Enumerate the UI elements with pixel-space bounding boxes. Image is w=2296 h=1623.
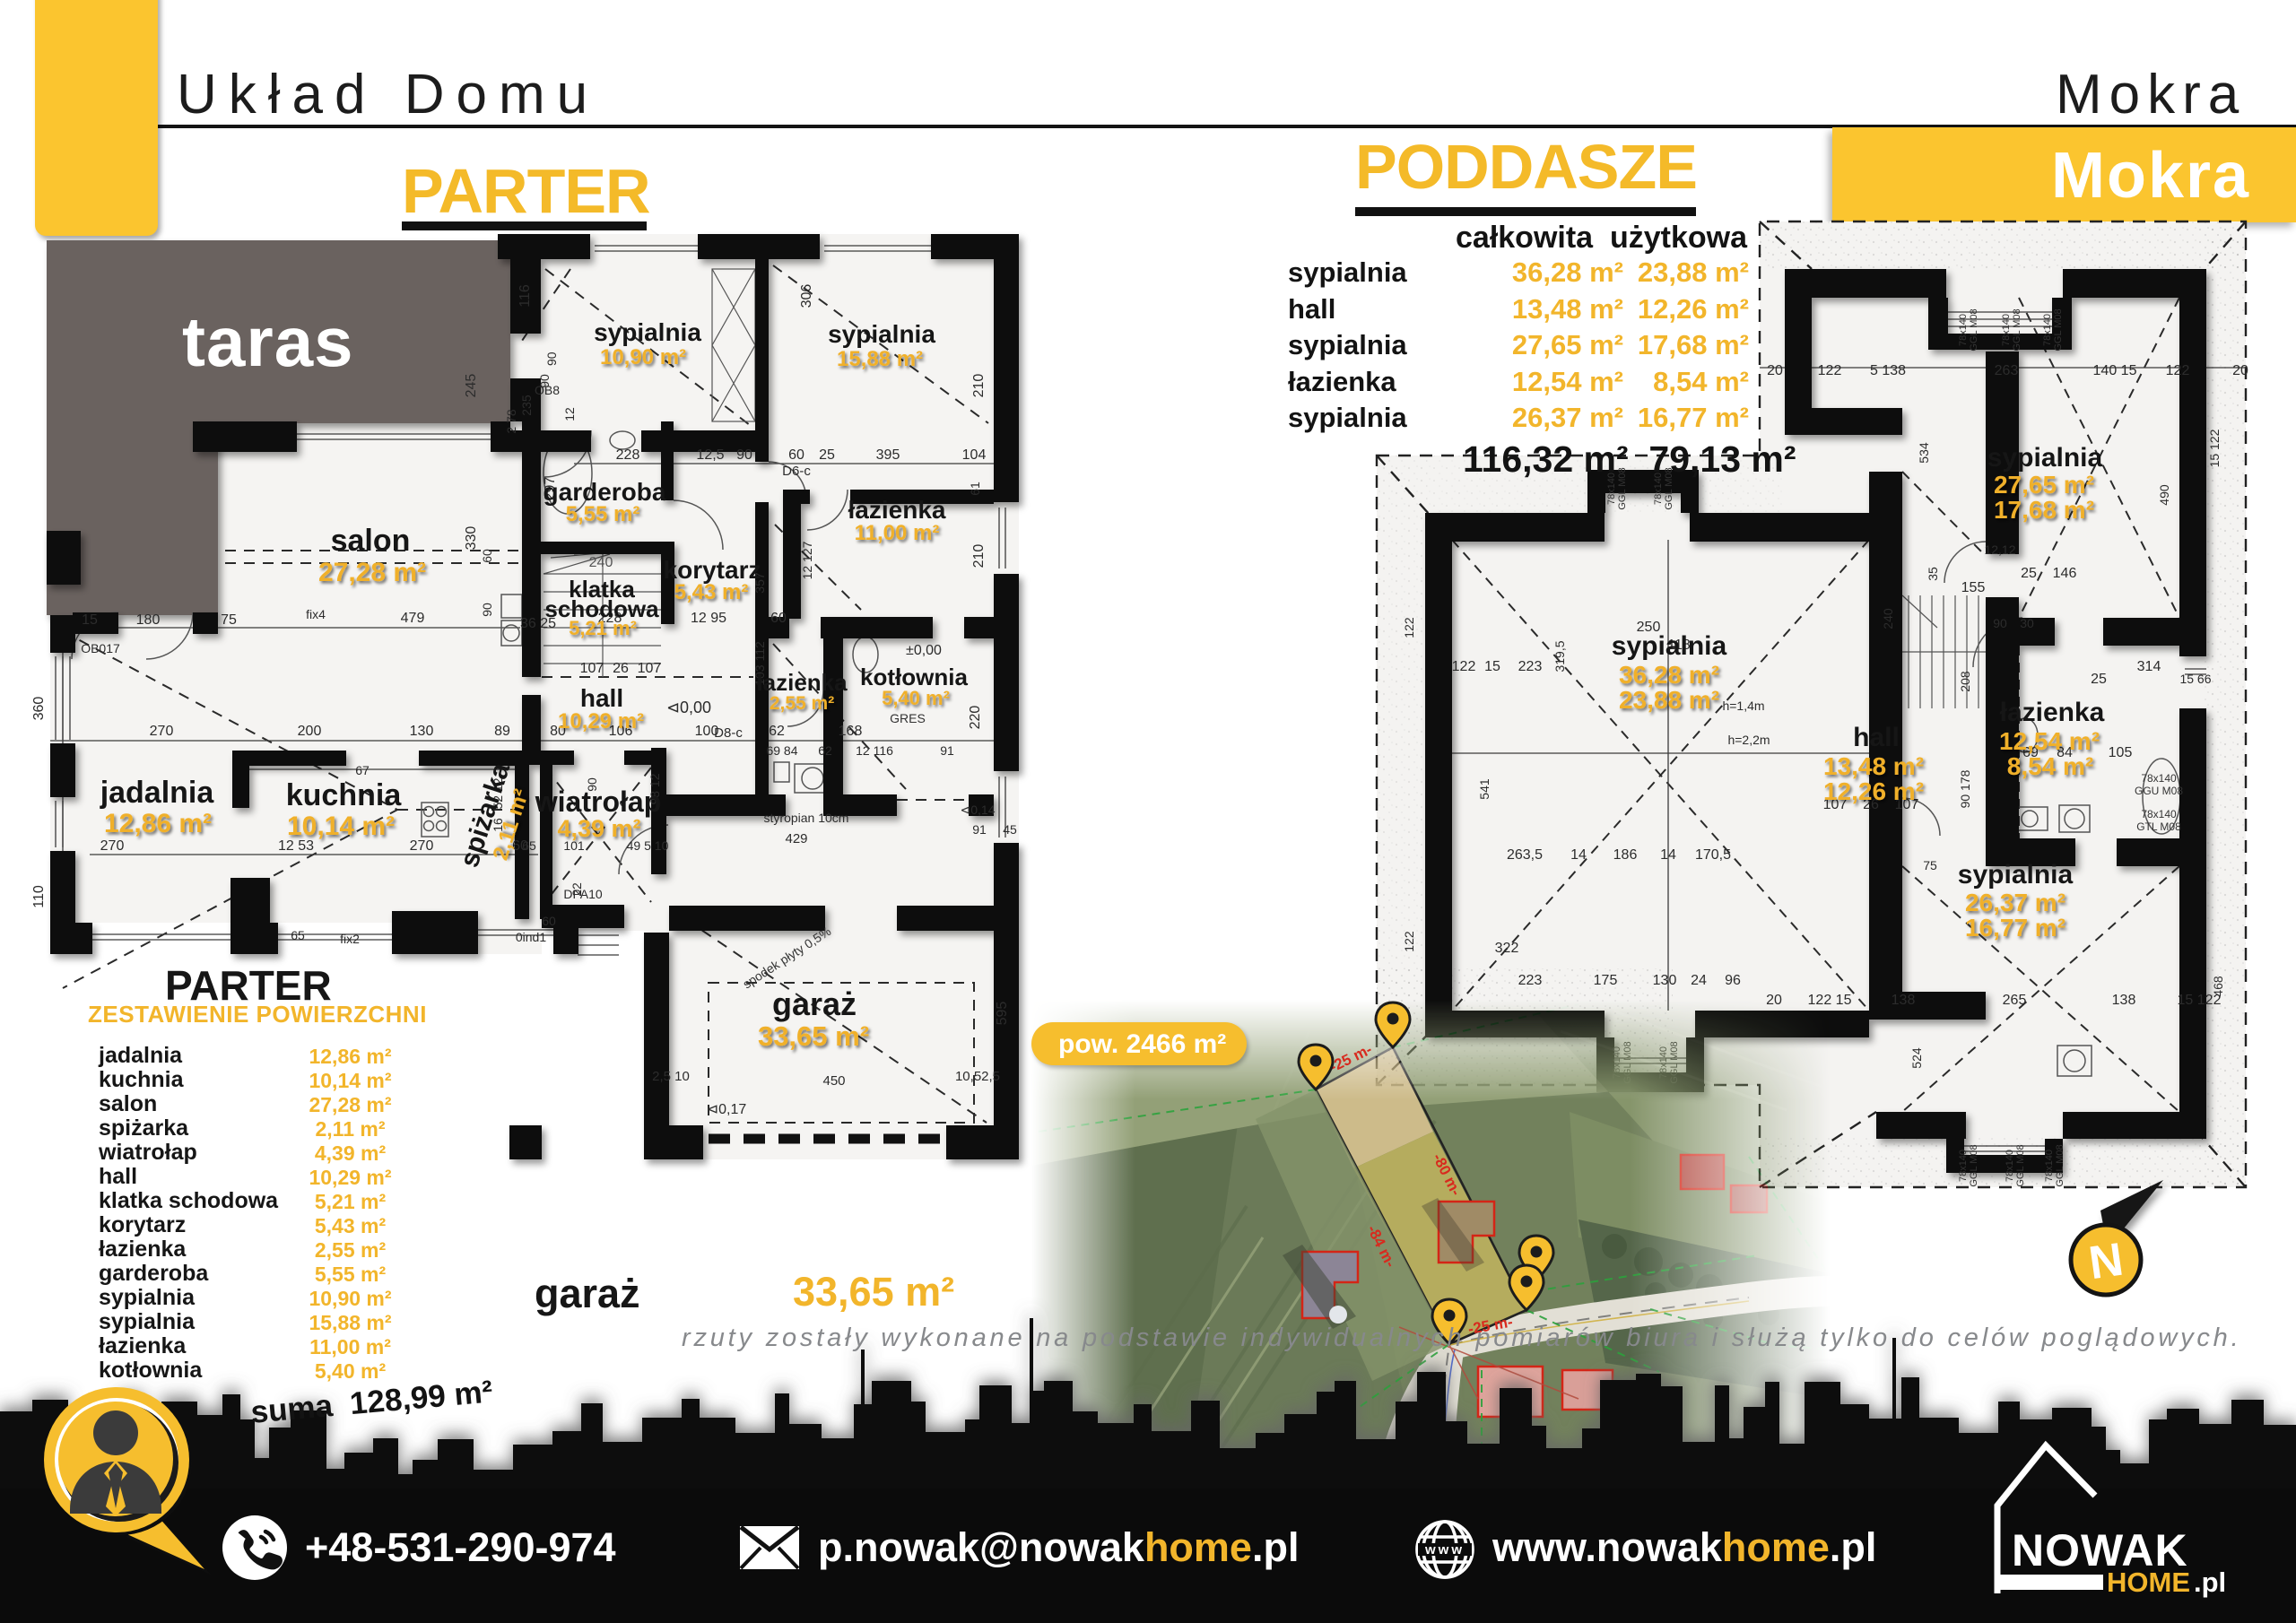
svg-text:5,43 m²: 5,43 m² xyxy=(674,580,749,604)
svg-text:25: 25 xyxy=(2091,672,2107,687)
svg-text:hall: hall xyxy=(580,684,623,712)
svg-text:155: 155 xyxy=(1961,580,1986,595)
svg-text:91: 91 xyxy=(972,822,987,837)
svg-text:GTL M08: GTL M08 xyxy=(2136,820,2181,833)
svg-text:330: 330 xyxy=(464,526,479,551)
svg-text:12,12: 12,12 xyxy=(1984,542,2015,557)
svg-text:10,90 m²: 10,90 m² xyxy=(600,345,686,369)
svg-text:kuchnia: kuchnia xyxy=(286,778,403,812)
svg-text:62: 62 xyxy=(818,743,832,758)
svg-text:265: 265 xyxy=(2003,993,2027,1008)
svg-text:10,52,5: 10,52,5 xyxy=(955,1069,1000,1084)
svg-text:27,65 m²: 27,65 m² xyxy=(1994,471,2094,499)
svg-text:240: 240 xyxy=(589,555,613,570)
svg-text:270: 270 xyxy=(100,838,125,854)
svg-text:140 15: 140 15 xyxy=(2093,363,2137,378)
svg-text:±0,00: ±0,00 xyxy=(906,643,942,658)
svg-text:122: 122 xyxy=(1402,617,1416,638)
svg-text:263,5: 263,5 xyxy=(1507,847,1543,863)
svg-text:110: 110 xyxy=(31,885,47,908)
svg-text:0ind1: 0ind1 xyxy=(516,930,546,944)
svg-text:45: 45 xyxy=(1003,822,1017,837)
svg-text:12,54 m²: 12,54 m² xyxy=(1999,727,2100,755)
svg-text:107: 107 xyxy=(638,661,662,676)
svg-text:16,77 m²: 16,77 m² xyxy=(1965,914,2066,942)
svg-text:89: 89 xyxy=(494,724,510,739)
svg-text:sypialnia: sypialnia xyxy=(1987,443,2103,473)
svg-text:15 66: 15 66 xyxy=(2179,672,2211,686)
svg-text:jadalnia: jadalnia xyxy=(100,776,215,810)
svg-text:15 122: 15 122 xyxy=(2207,429,2222,467)
svg-text:210: 210 xyxy=(971,544,987,568)
svg-text:60: 60 xyxy=(788,447,804,463)
svg-text:sypialnia: sypialnia xyxy=(1958,860,2074,890)
svg-text:fix2: fix2 xyxy=(340,932,360,946)
svg-text:łazienka: łazienka xyxy=(2000,698,2105,727)
svg-text:490: 490 xyxy=(2157,484,2171,506)
svg-text:69 84: 69 84 xyxy=(766,743,797,758)
svg-text:GRES: GRES xyxy=(890,711,926,725)
svg-text:170,5: 170,5 xyxy=(1695,847,1731,863)
svg-text:322: 322 xyxy=(1495,941,1519,956)
svg-text:26: 26 xyxy=(613,661,629,676)
svg-text:595: 595 xyxy=(995,1002,1010,1026)
svg-text:25: 25 xyxy=(2021,566,2037,581)
svg-text:78x140: 78x140 xyxy=(2141,808,2177,820)
svg-text:łazienka: łazienka xyxy=(848,496,946,524)
svg-text:20: 20 xyxy=(1767,363,1783,378)
svg-text:220: 220 xyxy=(968,706,983,730)
svg-text:⊲0,14: ⊲0,14 xyxy=(961,803,996,817)
svg-text:168: 168 xyxy=(839,724,863,739)
svg-text:12: 12 xyxy=(562,407,577,421)
svg-text:223: 223 xyxy=(1518,973,1543,988)
svg-text:245: 245 xyxy=(464,374,479,398)
svg-text:GGL M08: GGL M08 xyxy=(2015,1144,2026,1186)
svg-text:.pl: .pl xyxy=(2194,1567,2226,1598)
svg-text:104: 104 xyxy=(962,447,987,463)
svg-text:90: 90 xyxy=(1993,616,2007,630)
svg-text:12,86 m²: 12,86 m² xyxy=(104,809,212,838)
svg-text:138: 138 xyxy=(1892,993,1916,1008)
svg-text:GGU M08: GGU M08 xyxy=(2135,785,2183,797)
svg-text:78x140: 78x140 xyxy=(2001,314,2012,346)
svg-text:90: 90 xyxy=(736,447,752,463)
svg-text:12,26 m²: 12,26 m² xyxy=(1823,777,1924,805)
svg-text:67: 67 xyxy=(355,763,370,777)
svg-text:sypialnia: sypialnia xyxy=(594,318,701,346)
svg-text:8,54 m²: 8,54 m² xyxy=(2007,752,2094,780)
svg-text:228: 228 xyxy=(616,447,640,463)
svg-text:15: 15 xyxy=(82,612,98,628)
svg-text:138: 138 xyxy=(2112,993,2136,1008)
svg-text:210: 210 xyxy=(971,374,987,398)
svg-text:186: 186 xyxy=(1613,847,1638,863)
svg-text:h=2,2m: h=2,2m xyxy=(1727,733,1770,747)
svg-text:33,65 m²: 33,65 m² xyxy=(758,1020,869,1052)
svg-text:⊲0,00: ⊲0,00 xyxy=(666,699,711,716)
svg-text:5,21 m²: 5,21 m² xyxy=(569,617,637,639)
svg-text:78x140: 78x140 xyxy=(1958,1150,1969,1182)
svg-text:180: 180 xyxy=(136,612,161,628)
svg-text:175: 175 xyxy=(1594,973,1618,988)
svg-text:61: 61 xyxy=(968,482,982,496)
svg-text:12 116: 12 116 xyxy=(856,743,893,758)
svg-text:130: 130 xyxy=(410,724,434,739)
svg-text:91: 91 xyxy=(940,743,954,758)
svg-text:450: 450 xyxy=(822,1073,845,1089)
svg-text:GGL M08: GGL M08 xyxy=(1969,1144,1979,1186)
svg-text:26,37 m²: 26,37 m² xyxy=(1965,889,2066,916)
svg-text:90: 90 xyxy=(544,352,559,366)
svg-text:12 95: 12 95 xyxy=(691,611,726,626)
svg-text:130: 130 xyxy=(1653,973,1677,988)
svg-text:OB017: OB017 xyxy=(81,641,120,655)
svg-text:395: 395 xyxy=(876,447,900,463)
svg-text:10,14 m²: 10,14 m² xyxy=(287,811,395,841)
svg-text:22: 22 xyxy=(570,882,584,897)
svg-text:122: 122 xyxy=(1452,659,1476,674)
svg-text:4,39 m²: 4,39 m² xyxy=(557,815,640,842)
svg-text:12 127: 12 127 xyxy=(800,541,814,579)
svg-text:78x140: 78x140 xyxy=(2044,1150,2055,1182)
svg-text:78x140: 78x140 xyxy=(2042,314,2053,346)
svg-text:sypialnia: sypialnia xyxy=(1612,631,1727,661)
svg-text:65: 65 xyxy=(522,838,536,853)
svg-text:5,40 m²: 5,40 m² xyxy=(882,687,950,709)
svg-text:263: 263 xyxy=(1995,363,2019,378)
svg-text:hall: hall xyxy=(1853,723,1900,752)
svg-text:534: 534 xyxy=(1917,442,1931,464)
svg-text:240: 240 xyxy=(1881,608,1895,629)
svg-text:23,88 m²: 23,88 m² xyxy=(1619,686,1719,714)
svg-text:60: 60 xyxy=(542,914,556,928)
svg-text:75: 75 xyxy=(1923,858,1937,872)
svg-text:78x140: 78x140 xyxy=(2141,772,2177,785)
svg-text:2 78: 2 78 xyxy=(504,409,518,433)
svg-text:122: 122 xyxy=(1402,931,1416,952)
svg-text:208: 208 xyxy=(1958,671,1972,692)
svg-text:GGL M08: GGL M08 xyxy=(2055,1144,2066,1186)
svg-text:24: 24 xyxy=(1691,973,1707,988)
svg-text:116: 116 xyxy=(517,284,533,308)
svg-text:90 178: 90 178 xyxy=(1958,769,1972,808)
svg-text:12,5: 12,5 xyxy=(696,447,724,463)
svg-text:salon: salon xyxy=(331,524,411,558)
svg-text:N: N xyxy=(2086,1234,2126,1290)
svg-text:17,68 m²: 17,68 m² xyxy=(1994,496,2094,524)
svg-text:⊲0,17: ⊲0,17 xyxy=(707,1102,747,1117)
svg-text:garaż: garaż xyxy=(772,985,857,1022)
svg-text:235: 235 xyxy=(519,395,534,416)
svg-text:360: 360 xyxy=(31,697,47,721)
svg-text:270: 270 xyxy=(410,838,434,854)
svg-text:122: 122 xyxy=(1818,363,1842,378)
svg-text:15 122: 15 122 xyxy=(2178,993,2222,1008)
svg-text:306: 306 xyxy=(799,284,814,308)
svg-text:96: 96 xyxy=(1725,973,1741,988)
svg-text:105: 105 xyxy=(2109,745,2133,760)
svg-text:taras: taras xyxy=(182,302,353,381)
svg-text:146: 146 xyxy=(2053,566,2077,581)
svg-text:13,48 m²: 13,48 m² xyxy=(1823,752,1924,780)
svg-text:36,28 m²: 36,28 m² xyxy=(1619,661,1719,689)
svg-text:www: www xyxy=(1424,1542,1465,1558)
svg-text:65: 65 xyxy=(291,928,305,942)
svg-text:62: 62 xyxy=(769,724,785,739)
svg-text:270: 270 xyxy=(150,724,174,739)
svg-text:5,55 m²: 5,55 m² xyxy=(566,502,640,526)
svg-text:HOME: HOME xyxy=(2107,1567,2190,1598)
svg-text:78x140: 78x140 xyxy=(2005,1150,2015,1182)
svg-text:524: 524 xyxy=(1909,1047,1924,1069)
svg-text:20: 20 xyxy=(2232,363,2248,378)
svg-text:14: 14 xyxy=(1570,847,1587,863)
svg-text:429: 429 xyxy=(785,831,807,846)
svg-text:78x140: 78x140 xyxy=(1958,314,1969,346)
svg-text:D6-c: D6-c xyxy=(782,464,811,479)
svg-text:11,00 m²: 11,00 m² xyxy=(855,521,940,545)
svg-text:styropian 10cm: styropian 10cm xyxy=(764,811,849,825)
svg-text:314: 314 xyxy=(2137,659,2161,674)
svg-text:200: 200 xyxy=(298,724,322,739)
svg-text:2,5 10: 2,5 10 xyxy=(652,1069,690,1084)
svg-text:107: 107 xyxy=(580,661,604,676)
svg-text:10,29 m²: 10,29 m² xyxy=(558,709,644,733)
svg-text:60: 60 xyxy=(480,549,494,563)
svg-text:90: 90 xyxy=(480,603,494,617)
svg-text:90: 90 xyxy=(537,374,552,388)
svg-text:35: 35 xyxy=(1926,567,1940,581)
svg-text:25: 25 xyxy=(819,447,835,463)
svg-text:319,5: 319,5 xyxy=(1552,640,1567,672)
svg-text:60: 60 xyxy=(770,611,787,626)
svg-text:D8-c: D8-c xyxy=(714,725,743,741)
svg-text:15: 15 xyxy=(1484,659,1500,674)
svg-text:223: 223 xyxy=(1518,659,1543,674)
svg-text:5 138: 5 138 xyxy=(1870,363,1906,378)
svg-text:122: 122 xyxy=(2166,363,2190,378)
svg-text:27,28 m²: 27,28 m² xyxy=(318,558,426,587)
svg-text:sypialnia: sypialnia xyxy=(828,320,935,348)
svg-text:GGL M08: GGL M08 xyxy=(2012,308,2022,351)
svg-text:GGL M08: GGL M08 xyxy=(2053,308,2064,351)
svg-text:14: 14 xyxy=(1660,847,1676,863)
svg-text:h=1,4m: h=1,4m xyxy=(1722,699,1764,713)
svg-text:GGL M08: GGL M08 xyxy=(1969,308,1979,351)
svg-text:541: 541 xyxy=(1477,778,1492,800)
svg-text:30: 30 xyxy=(2020,616,2034,630)
svg-text:2,55 m²: 2,55 m² xyxy=(770,693,834,714)
svg-text:479: 479 xyxy=(401,611,425,626)
svg-text:łazienka: łazienka xyxy=(756,669,848,696)
svg-text:fix4: fix4 xyxy=(306,607,326,621)
svg-text:wiatrołap: wiatrołap xyxy=(535,785,661,818)
svg-text:15,88 m²: 15,88 m² xyxy=(837,347,923,371)
svg-text:75: 75 xyxy=(221,612,237,628)
